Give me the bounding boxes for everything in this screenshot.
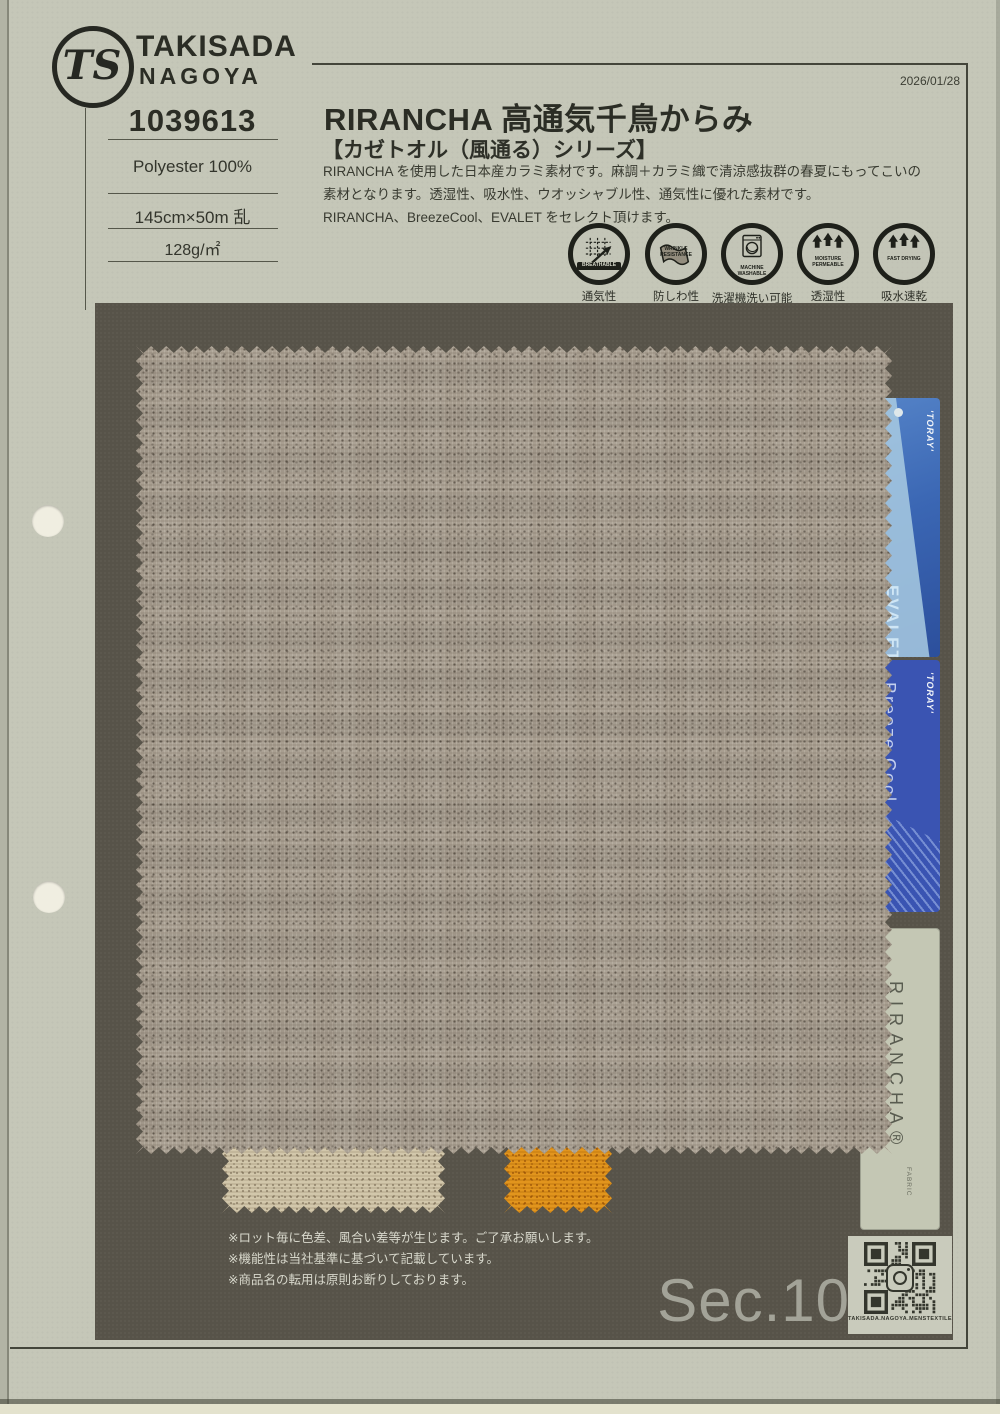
moisture-permeable-icon [802,228,854,280]
spec-rule [108,228,278,229]
badge-en-label: MACHINE WASHABLE [729,266,776,277]
takisada-logo: TS [52,26,134,108]
brand-name-line2: NAGOYA [139,63,262,90]
fast-drying-icon [878,228,930,280]
frame-rule-top [312,63,968,65]
issue-date: 2026/01/28 [820,74,960,88]
badge-en-label: WRINKLE RESISTANCE [653,247,700,258]
page-edge-bottom-strip [0,1404,1000,1414]
badge-en-label: MOISTURE PERMEABLE [805,257,852,268]
composition: Polyester 100% [100,157,285,177]
width-length: 145cm×50m 乱 [100,203,285,228]
note-line: ※ロット毎に色差、風合い差等が生じます。ご了承お願いします。 [228,1228,788,1249]
rirancha-tag-sub: FABRIC [905,1167,912,1196]
section-number: Sec.10 [600,1266,850,1335]
description-line: RIRANCHA を使用した日本産カラミ素材です。麻調＋カラミ織で清涼感抜群の春… [323,160,968,183]
badge-moisture-permeable: MOISTURE PERMEABLE [797,223,859,285]
badge-jp-label: 吸水速乾 [849,288,959,304]
toray-brand-text: 'TORAY' [925,672,935,714]
description-line: RIRANCHA、BreezeCool、EVALET をセレクト頂けます。 [323,206,968,229]
punch-hole-bottom [33,881,65,913]
spec-rule [108,261,278,262]
info-divider [85,108,86,310]
badge-machine-washable: MACHINE WASHABLE [721,223,783,285]
weight: 128g/㎡ [100,236,285,260]
product-description: RIRANCHA を使用した日本産カラミ素材です。麻調＋カラミ織で清涼感抜群の春… [323,160,968,229]
tag-punch-hole [894,408,903,417]
instagram-icon [886,1264,914,1292]
punch-hole-top [32,505,64,537]
frame-rule-bottom [10,1347,968,1349]
toray-brand-text: 'TORAY' [925,410,935,452]
product-title: RIRANCHA 高通気千鳥からみ [324,94,753,139]
qr-panel: TAKISADA.NAGOYA.MENSTEXTILE [848,1236,952,1334]
main-fabric-swatch [136,346,892,1154]
description-line: 素材となります。透湿性、吸水性、ウオッシャブル性、通気性に優れた素材です。 [323,183,968,206]
frame-rule-right [966,63,968,1349]
breathable-icon [573,228,625,280]
badge-en-label: FAST DRYING [881,257,928,263]
page-edge-right [996,0,1000,1414]
product-number: 1039613 [100,103,285,139]
badge-wrinkle-resistance: WRINKLE RESISTANCE [645,223,707,285]
spec-rule [108,193,278,194]
badge-en-label: BREATHABLE [577,262,621,270]
badge-fast-drying: FAST DRYING [873,223,935,285]
brand-name-line1: TAKISADA [136,30,297,64]
spec-rule [108,139,278,140]
badge-breathable: BREATHABLE [568,223,630,285]
logo-monogram: TS [63,42,122,89]
page-edge-left [0,0,9,1414]
sample-card-page: 'TORAY' EVALET 'TORAY' Breeze Cool. RIRA… [0,0,1000,1414]
